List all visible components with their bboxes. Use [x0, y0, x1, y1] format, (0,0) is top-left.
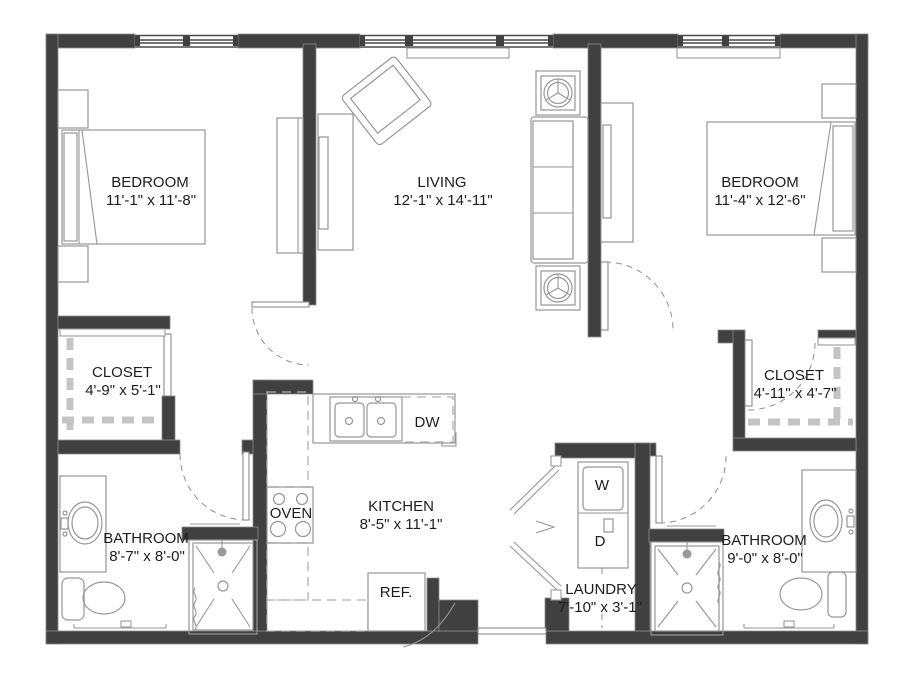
kitchen-dims: 8'-5" x 11'-1"	[360, 516, 443, 533]
living-label: LIVING	[417, 174, 466, 191]
bathroom1-label: BATHROOM	[103, 530, 189, 547]
door-swing-arc	[605, 262, 673, 330]
laundry-dims: 7'-10" x 3'-1"	[558, 599, 642, 616]
bathroom2-label: BATHROOM	[721, 532, 807, 549]
window-icon	[360, 34, 553, 48]
closet-shelf	[60, 329, 165, 336]
bathroom2-dims: 9'-0" x 8'-0"	[727, 550, 803, 567]
closet1-dims: 4'-9" x 5'-1"	[85, 382, 161, 399]
vanity-sink-icon	[802, 470, 856, 572]
windows	[135, 34, 780, 58]
shower-icon	[189, 540, 257, 634]
laundry-label: LAUNDRY	[565, 581, 636, 598]
window-sill	[677, 48, 780, 58]
door-leaf	[164, 334, 171, 396]
bathroom1-dims: 8'-7" x 8'-0"	[109, 548, 185, 565]
nightstand-icon	[58, 246, 88, 282]
dishwasher-label: DW	[415, 414, 441, 431]
bedroom2-label: BEDROOM	[721, 174, 799, 191]
upper-cabinets	[267, 392, 308, 487]
tv-console-icon	[318, 114, 353, 250]
closet2-dims: 4'-11" x 4'-7"	[754, 385, 837, 402]
dryer-label: D	[595, 533, 606, 550]
window-icon	[678, 34, 780, 48]
dresser-icon	[601, 103, 633, 242]
side-table-icon	[536, 266, 580, 310]
nightstand-icon	[822, 238, 856, 272]
door-leaf	[656, 456, 662, 523]
side-table-icon	[536, 71, 580, 115]
door-swing-arc	[659, 456, 726, 523]
nightstand-icon	[58, 90, 88, 128]
door-leaf	[745, 340, 752, 406]
closet1-label: CLOSET	[92, 364, 152, 381]
door-leaf	[601, 262, 608, 330]
door-swing-arc	[180, 454, 246, 520]
door-leaf	[243, 452, 249, 520]
washer-label: W	[595, 477, 610, 494]
entry-door-leaf	[478, 628, 546, 634]
towel-bar-icon	[74, 621, 166, 628]
kitchen-label: KITCHEN	[368, 498, 434, 515]
window-icon	[135, 34, 238, 48]
towel-bar-icon	[744, 621, 834, 628]
nightstand-icon	[822, 84, 856, 118]
armchair-icon	[341, 55, 433, 146]
vanity-sink-icon	[60, 476, 106, 572]
lower-cabinets	[267, 600, 368, 631]
bedroom1-label: BEDROOM	[111, 174, 189, 191]
door-swing-arc	[252, 308, 309, 365]
toilet-icon	[780, 572, 846, 617]
oven-label: OVEN	[270, 505, 313, 522]
bifold-door-icon	[510, 456, 561, 600]
door-leaf	[252, 302, 309, 307]
dresser-icon	[277, 118, 303, 253]
living-dims: 12'-1" x 14'-11"	[393, 192, 493, 209]
sofa-icon	[531, 117, 588, 263]
shower-icon	[651, 542, 723, 635]
bedroom1-dims: 11'-1" x 11'-8"	[106, 192, 196, 209]
window-sill	[407, 48, 509, 58]
upper-cabinets	[267, 543, 308, 600]
living-furniture	[318, 55, 588, 446]
toilet-icon	[62, 578, 125, 620]
refrigerator-label: REF.	[380, 584, 413, 601]
closet2-label: CLOSET	[764, 367, 824, 384]
closet-shelf	[818, 338, 855, 345]
bedroom2-dims: 11'-4" x 12'-6"	[714, 192, 805, 209]
floor-plan-canvas: BEDROOM 11'-1" x 11'-8" LIVING 12'-1" x …	[0, 0, 904, 680]
refrigerator	[368, 573, 425, 631]
